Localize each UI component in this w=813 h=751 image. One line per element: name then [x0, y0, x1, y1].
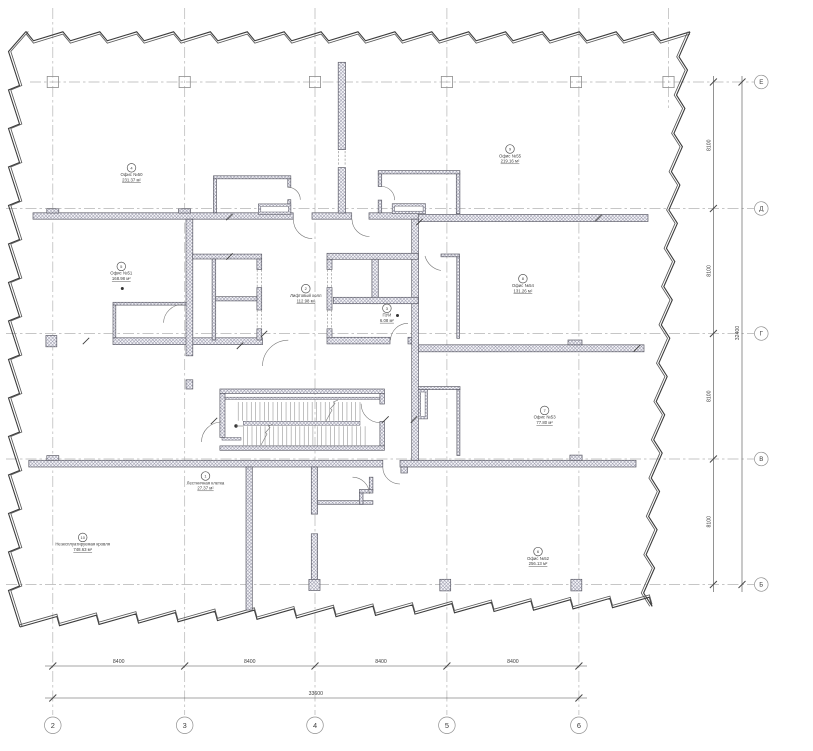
svg-text:6.08 м²: 6.08 м² — [380, 318, 395, 323]
svg-text:219.16 м²: 219.16 м² — [501, 159, 520, 164]
svg-text:Офис №50: Офис №50 — [120, 172, 143, 177]
svg-text:10: 10 — [80, 535, 85, 540]
svg-text:Офис №54: Офис №54 — [512, 283, 535, 288]
svg-text:Б: Б — [759, 582, 763, 589]
svg-text:168.98 м²: 168.98 м² — [112, 276, 131, 281]
svg-text:Неэксплуатируемая кровля: Неэксплуатируемая кровля — [55, 542, 110, 547]
svg-text:8100: 8100 — [707, 139, 713, 151]
svg-text:8100: 8100 — [707, 516, 713, 528]
svg-text:В: В — [759, 456, 763, 463]
svg-text:4: 4 — [313, 721, 317, 730]
svg-text:8100: 8100 — [707, 265, 713, 277]
svg-text:Офис №55: Офис №55 — [499, 153, 522, 158]
svg-text:748.63 м²: 748.63 м² — [73, 547, 92, 552]
svg-text:8100: 8100 — [707, 390, 713, 402]
svg-text:131.26 м²: 131.26 м² — [514, 288, 533, 293]
svg-text:8400: 8400 — [244, 659, 256, 665]
svg-text:256.13 м²: 256.13 м² — [529, 561, 548, 566]
svg-text:27.37 м²: 27.37 м² — [197, 486, 214, 491]
svg-text:33600: 33600 — [309, 691, 324, 697]
svg-text:Офис №53: Офис №53 — [534, 415, 557, 420]
svg-text:6: 6 — [577, 721, 581, 730]
svg-text:Офис №51: Офис №51 — [110, 271, 133, 276]
svg-text:ПУИ: ПУИ — [382, 313, 391, 318]
svg-text:32400: 32400 — [735, 326, 741, 341]
svg-text:3: 3 — [183, 721, 187, 730]
svg-text:231.37 м²: 231.37 м² — [122, 177, 141, 182]
svg-text:Офис №52: Офис №52 — [527, 556, 550, 561]
svg-text:Е: Е — [759, 79, 763, 86]
svg-text:2: 2 — [51, 721, 55, 730]
svg-text:77.80 м²: 77.80 м² — [536, 420, 553, 425]
svg-text:112.98 м²: 112.98 м² — [297, 298, 316, 303]
svg-text:8400: 8400 — [375, 659, 387, 665]
svg-text:Лестничная клетка: Лестничная клетка — [187, 480, 225, 485]
svg-text:8400: 8400 — [113, 659, 125, 665]
svg-text:Лифтовый холл: Лифтовый холл — [290, 293, 322, 298]
svg-text:5: 5 — [445, 721, 449, 730]
svg-text:8400: 8400 — [507, 659, 519, 665]
